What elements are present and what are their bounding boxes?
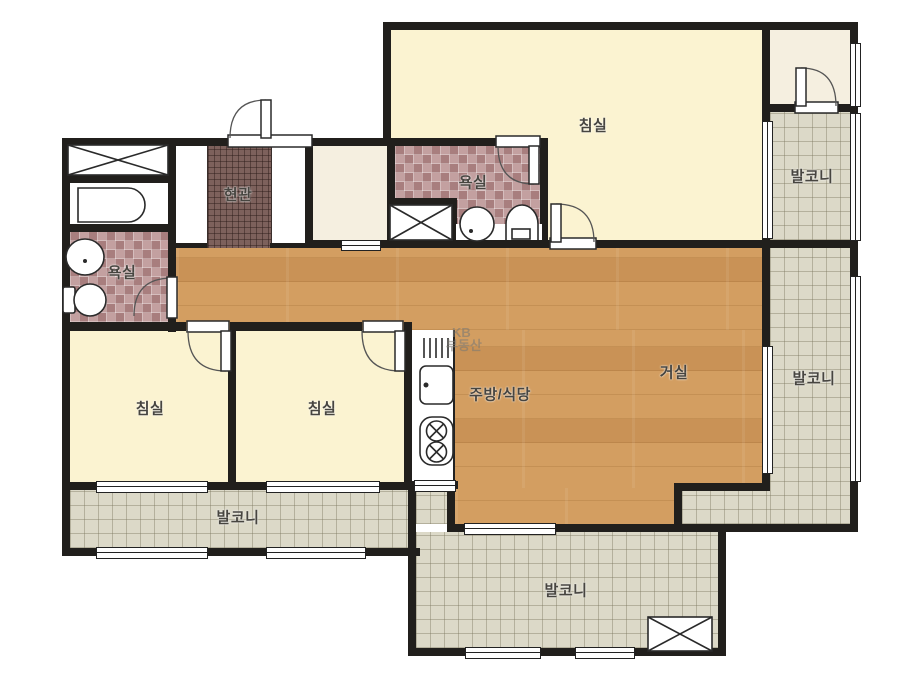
label-kitchen-dining: 주방/식당 [469,384,531,405]
window-balcony-left-1 [96,547,208,559]
balcony-kitchen-notch [416,489,447,524]
wall [62,175,176,183]
window-balcony-left-2 [266,547,366,559]
wall [168,138,176,278]
wall [408,482,416,656]
room-utility-top-right [770,30,850,104]
wall [674,483,682,532]
wall [62,138,70,556]
closet-shaft-top-left [68,145,168,175]
label-living-room: 거실 [660,362,689,383]
hallway-floor [176,248,762,330]
window-bedroom-balcony [762,121,773,239]
wall [176,243,207,248]
window-living-balcony-south [464,523,556,535]
wall [718,524,726,656]
wall [450,198,457,240]
window-kitchen [414,480,456,492]
window-balcony-bottom-2 [575,647,635,659]
watermark-kb: KB 부동산 [452,326,482,352]
label-bedroom-master: 침실 [579,115,608,136]
label-balcony-right-upper: 발코니 [791,166,834,187]
label-bedroom-center: 침실 [308,398,337,419]
wall [391,138,498,146]
balcony-right-lower-wrap [682,491,770,524]
room-pantry-entry [313,146,387,240]
label-entrance: 현관 [224,184,253,205]
wall [270,243,306,248]
label-balcony-bottom-left: 발코니 [217,507,260,528]
wall [62,224,176,232]
wall [383,22,391,146]
label-bathroom-left: 욕실 [108,262,137,283]
wall [770,104,858,112]
floor-plan: 침실 욕실 현관 욕실 침실 침실 주방/식당 거실 발코니 발코니 발코니 발… [0,0,923,676]
window-balcony-right-upper [850,113,861,241]
label-balcony-bottom: 발코니 [545,580,588,601]
wall [387,146,395,240]
wall [387,198,457,205]
watermark-line2: 부동산 [446,339,482,352]
label-balcony-right-lower: 발코니 [793,368,836,389]
window-balcony-right-lower [850,276,861,482]
label-bedroom-left: 침실 [136,398,165,419]
wall [62,322,186,331]
living-kitchen-floor [412,330,762,491]
wall [62,138,392,146]
wall [228,331,236,482]
window-pantry [341,240,381,251]
window-balcony-bottom-1 [465,647,541,659]
window-living-balcony-east [762,346,773,474]
bathtub [78,188,145,222]
wall [404,322,412,490]
window-bedroom-left [96,481,208,493]
living-floor-lower [455,488,677,525]
wall [536,138,548,146]
window-bedroom-center [266,481,380,493]
wall [305,146,313,240]
room-bathroom-master [395,146,540,240]
window-utility-right [850,43,861,107]
wall [674,483,770,491]
label-bathroom-master: 욕실 [459,172,488,193]
wall [762,240,858,248]
wall [594,240,770,248]
wall [230,322,362,331]
wall [408,648,726,656]
wall [383,22,858,30]
wall [540,146,548,240]
